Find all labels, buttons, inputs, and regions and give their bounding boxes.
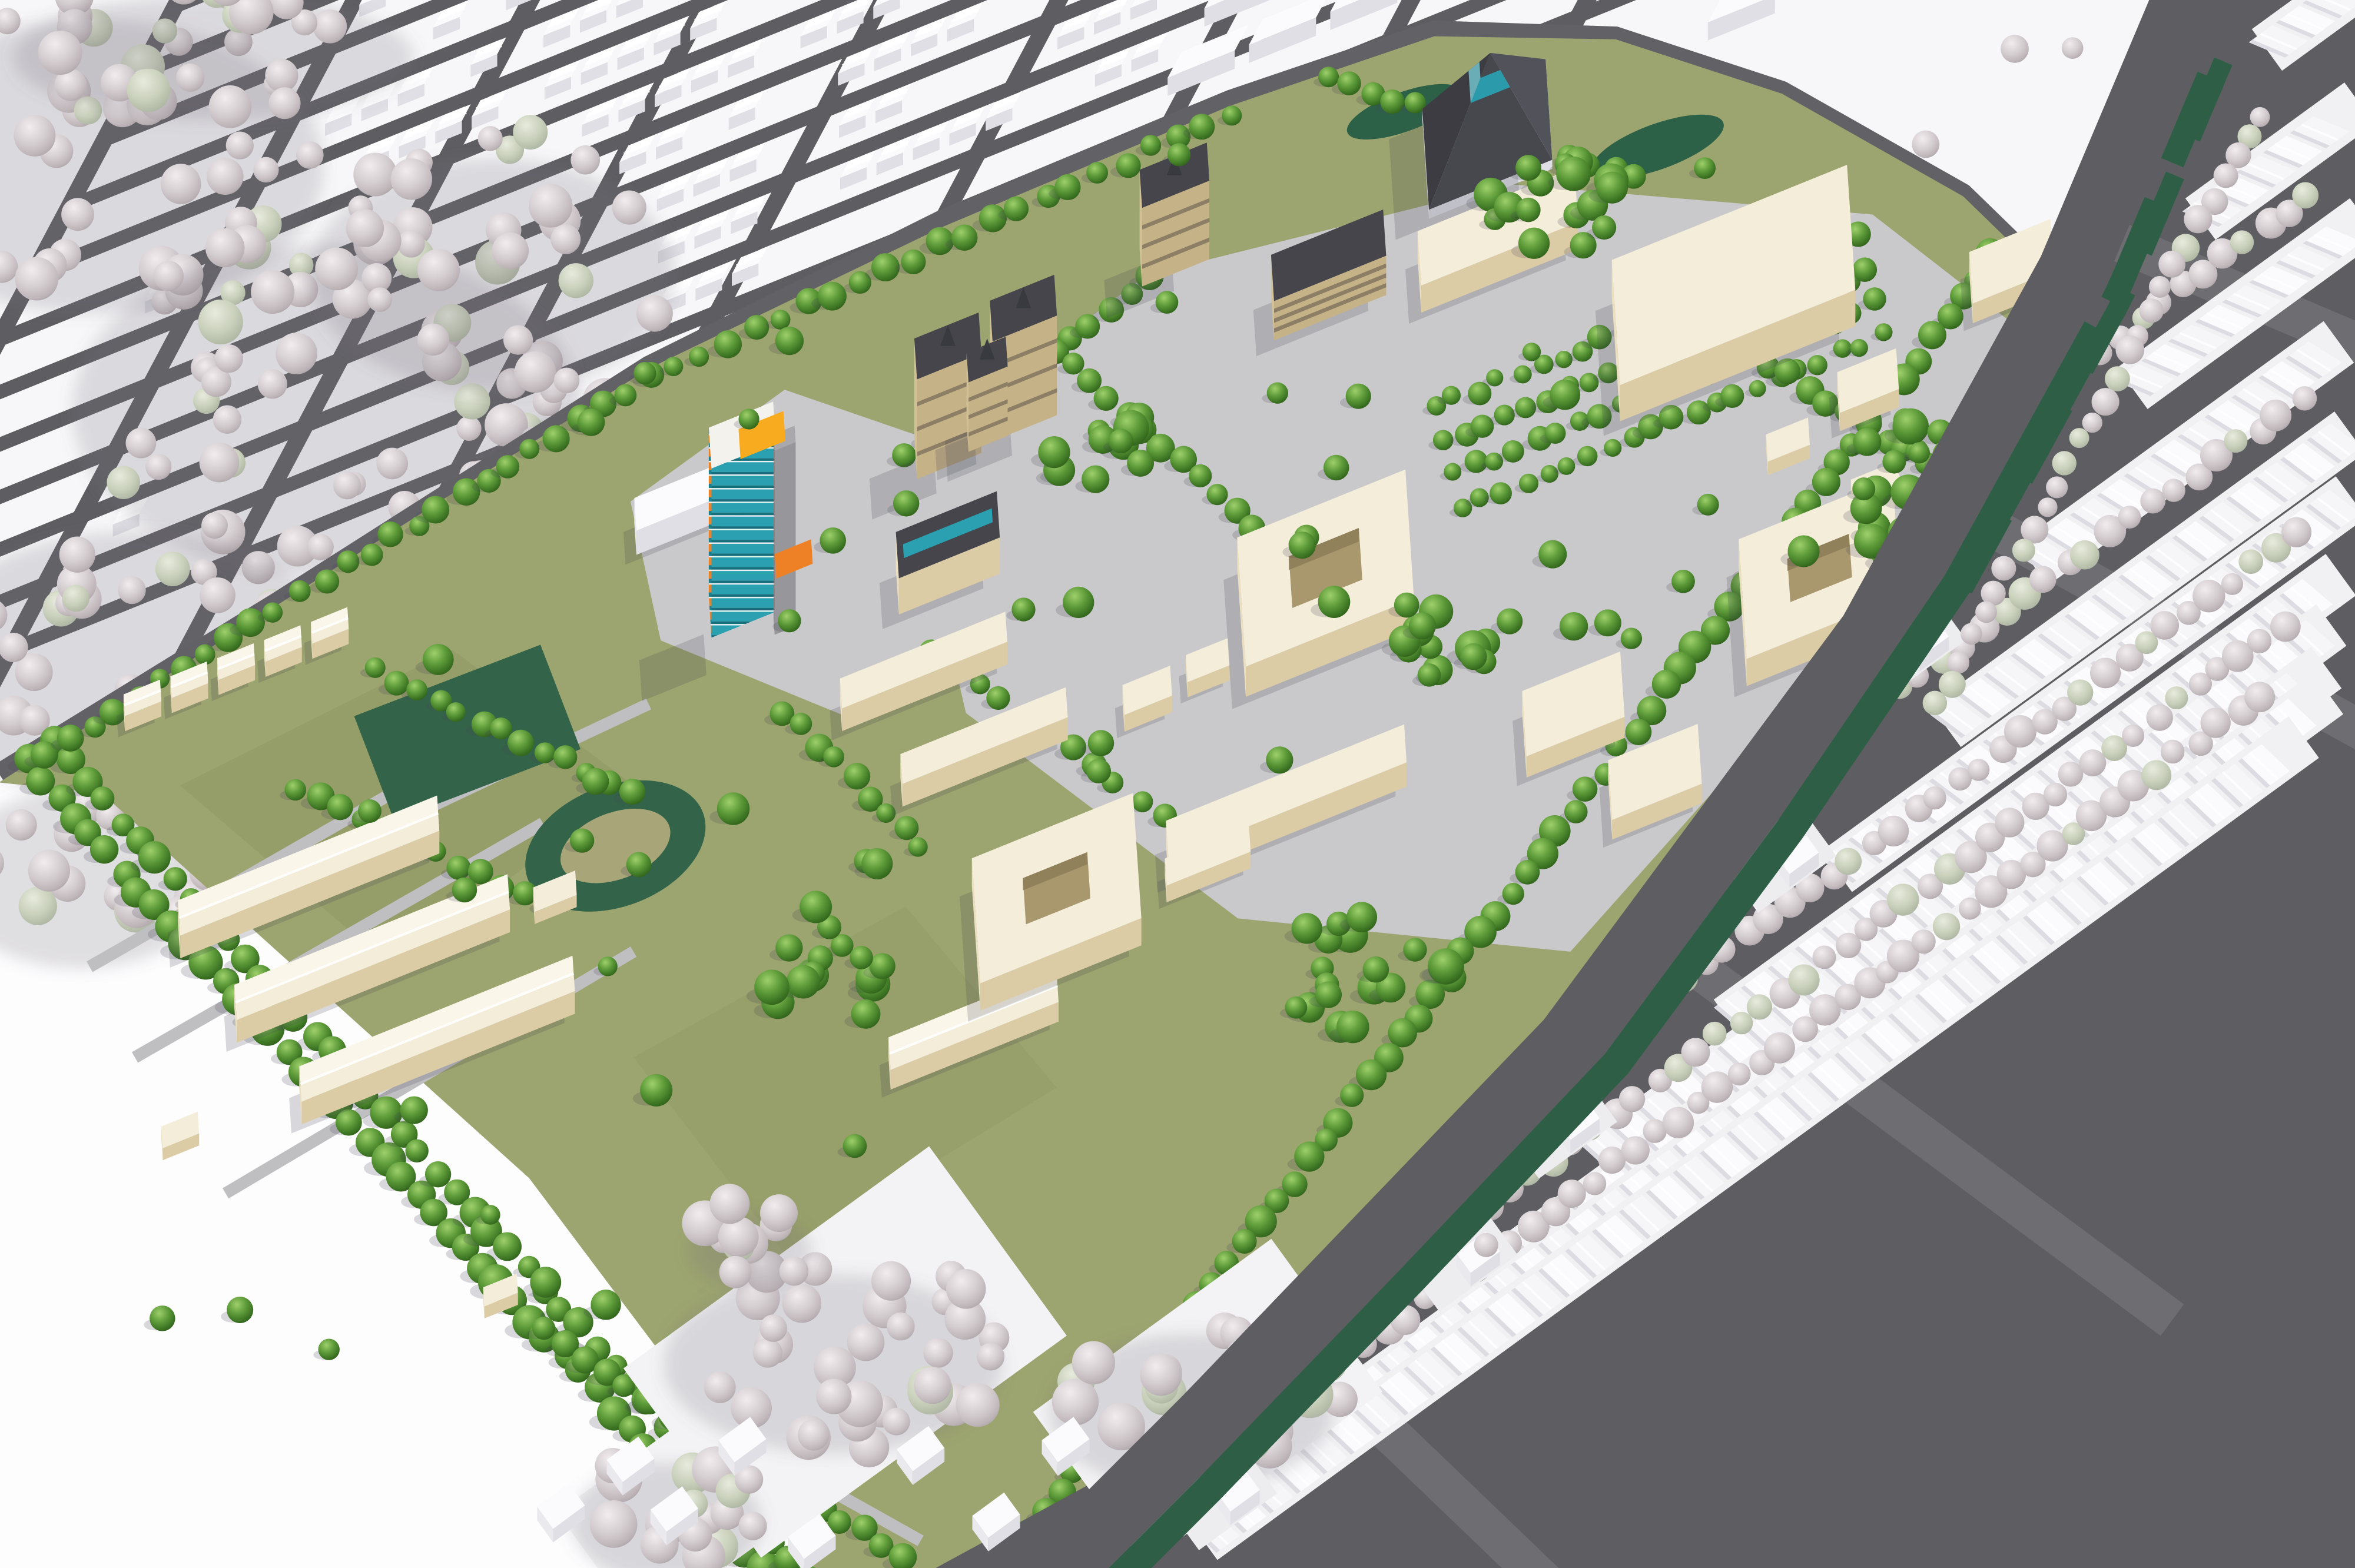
context-tree <box>2244 682 2275 712</box>
context-tree <box>554 368 580 394</box>
campus-tree <box>626 852 652 878</box>
campus-tree <box>894 816 918 840</box>
context-tree <box>313 9 347 44</box>
context-tree <box>346 209 384 247</box>
context-tree <box>1619 1086 1645 1112</box>
context-tree <box>1621 1136 1650 1164</box>
campus-tree <box>1140 135 1161 155</box>
tower-core <box>774 434 775 635</box>
campus-tree <box>1004 197 1029 221</box>
context-tree <box>2150 611 2179 640</box>
campus-tree <box>717 792 749 825</box>
campus-tree <box>1088 730 1115 756</box>
campus-tree <box>138 841 171 873</box>
context-tree <box>1583 1172 1606 1195</box>
context-tree <box>946 1269 986 1309</box>
context-tree <box>1959 898 1981 920</box>
context-tree <box>1878 816 1909 846</box>
campus-tree <box>337 550 359 573</box>
context-tree <box>1140 1354 1182 1396</box>
campus-tree <box>1556 157 1591 191</box>
context-tree <box>515 351 556 393</box>
campus-tree <box>869 953 895 979</box>
campus-tree <box>1156 291 1179 314</box>
campus-tree <box>1116 153 1141 178</box>
campus-tree <box>315 569 339 593</box>
campus-tree <box>850 946 873 969</box>
campus-tree <box>633 362 656 384</box>
campus-tree <box>365 657 386 678</box>
campus-tree <box>1409 612 1436 639</box>
campus-tree <box>1515 155 1541 181</box>
context-tree <box>1995 808 2024 837</box>
campus-tree <box>236 608 265 637</box>
campus-tree <box>908 837 927 856</box>
campus-tree <box>91 786 115 810</box>
context-tree <box>1701 1071 1733 1102</box>
context-tree <box>1887 883 1919 915</box>
campus-tree <box>1222 105 1242 125</box>
campus-tree <box>1909 442 1930 463</box>
campus-tree <box>598 956 618 976</box>
context-tree <box>2070 540 2099 570</box>
campus-tree <box>771 310 791 330</box>
context-tree <box>209 85 252 128</box>
context-tree <box>1961 623 1982 645</box>
context-tree <box>2069 428 2089 448</box>
context-tree <box>126 428 157 459</box>
context-tree <box>2158 251 2185 278</box>
campus-tree <box>1882 450 1906 473</box>
campus-tree <box>1465 450 1488 473</box>
campus-tree <box>1652 670 1681 699</box>
context-tree <box>2052 451 2077 475</box>
context-tree <box>353 152 397 196</box>
campus-tree <box>986 686 1010 710</box>
campus-tree <box>1518 228 1550 259</box>
context-tree <box>315 247 358 290</box>
context-tree <box>1991 556 2016 581</box>
campus-tree <box>787 965 820 999</box>
context-tree <box>154 261 184 291</box>
campus-tree <box>1415 979 1445 1009</box>
context-tree <box>2090 657 2121 688</box>
context-tree <box>2092 388 2119 416</box>
campus-tree <box>775 327 804 355</box>
campus-tree <box>1292 913 1322 944</box>
campus-tree <box>1063 587 1094 618</box>
campus-tree <box>778 609 801 632</box>
campus-tree <box>1127 450 1154 477</box>
context-tree <box>816 1378 851 1414</box>
context-tree <box>2044 783 2067 806</box>
campus-tree <box>425 1161 451 1187</box>
context-tree <box>1912 131 1939 158</box>
campus-tree <box>1592 215 1616 240</box>
campus-tree <box>1062 353 1084 374</box>
campus-tree <box>1418 663 1441 687</box>
context-tree <box>871 1261 911 1301</box>
campus-tree <box>1863 287 1886 310</box>
context-tree <box>161 164 201 204</box>
campus-tree <box>1336 1011 1369 1043</box>
campus-tree <box>1519 474 1538 493</box>
campus-tree <box>1787 536 1819 567</box>
context-tree <box>276 333 317 374</box>
context-tree <box>1681 1038 1710 1067</box>
context-tree <box>2250 107 2270 127</box>
campus-tree <box>1621 628 1642 649</box>
campus-tree <box>1394 593 1419 618</box>
campus-tree <box>714 330 742 358</box>
campus-tree <box>1697 494 1719 516</box>
context-tree <box>798 1419 830 1451</box>
campus-tree <box>1429 949 1464 984</box>
context-tree <box>62 584 89 612</box>
context-tree <box>2062 37 2084 59</box>
context-tree <box>2038 497 2057 517</box>
context-tree <box>1052 1378 1099 1425</box>
context-tree <box>760 1194 798 1232</box>
context-tree <box>1835 848 1862 875</box>
campus-tree <box>738 408 759 429</box>
context-tree <box>2260 400 2291 431</box>
campus-tree <box>1189 114 1215 139</box>
campus-tree <box>1596 172 1628 204</box>
campus-tree <box>490 717 512 739</box>
campus-tree <box>1523 343 1541 361</box>
campus-tree <box>406 1140 429 1162</box>
context-tree <box>503 325 533 354</box>
campus-tree <box>532 1317 555 1340</box>
context-tree <box>118 576 145 604</box>
campus-tree <box>164 867 187 891</box>
campus-tree <box>1502 883 1524 905</box>
context-tree <box>205 228 245 268</box>
context-tree <box>956 1383 1000 1427</box>
context-tree <box>780 1257 809 1286</box>
context-tree <box>207 158 244 195</box>
context-tree <box>201 512 228 539</box>
context-tree <box>2139 298 2164 323</box>
context-tree <box>2046 476 2068 498</box>
context-tree <box>2118 506 2141 529</box>
context-tree <box>1663 1107 1694 1138</box>
campus-tree <box>844 763 870 789</box>
context-tree <box>2079 749 2107 776</box>
context-tree <box>307 534 334 560</box>
context-tree <box>2214 163 2238 188</box>
campus-tree <box>1545 423 1566 444</box>
campus-tree <box>1558 457 1575 475</box>
scene-canvas <box>0 0 2355 1568</box>
context-tree <box>559 263 593 298</box>
campus-tree <box>664 357 683 376</box>
context-tree <box>2293 386 2317 411</box>
campus-tree <box>901 250 926 274</box>
campus-tree <box>851 999 881 1029</box>
context-tree <box>883 1408 910 1436</box>
context-tree <box>155 552 190 586</box>
campus-tree <box>452 878 477 903</box>
context-tree <box>719 1256 752 1288</box>
context-tree <box>753 1338 782 1368</box>
campus-tree <box>775 934 802 961</box>
campus-tree <box>871 253 900 281</box>
context-tree <box>782 1284 822 1323</box>
context-tree <box>2115 335 2144 364</box>
campus-tree <box>1460 643 1487 670</box>
campus-tree <box>1337 71 1361 95</box>
context-tree <box>636 295 673 332</box>
campus-tree <box>1318 586 1351 618</box>
campus-tree <box>553 745 577 769</box>
campus-tree <box>263 602 283 623</box>
context-tree <box>2221 573 2243 595</box>
campus-tree <box>790 713 812 735</box>
campus-tree <box>1541 465 1558 483</box>
campus-tree <box>358 799 382 823</box>
campus-tree <box>1442 386 1461 405</box>
context-tree <box>1747 994 1772 1019</box>
context-tree <box>198 300 243 344</box>
campus-tree <box>1514 366 1532 384</box>
campus-tree <box>361 544 383 566</box>
campus-tree <box>1266 746 1293 773</box>
context-tree <box>397 230 425 258</box>
tower-core <box>775 442 796 634</box>
campus-tree <box>893 490 919 516</box>
context-tree <box>2029 566 2057 593</box>
campus-tree <box>57 725 84 752</box>
campus-tree <box>820 527 846 554</box>
campus-tree <box>1294 1141 1324 1171</box>
context-tree <box>2001 35 2029 63</box>
campus-tree <box>422 496 449 523</box>
context-tree <box>704 1371 736 1403</box>
campus-tree <box>640 1074 672 1107</box>
context-tree <box>2105 366 2130 391</box>
context-tree <box>417 249 460 291</box>
context-tree <box>59 537 95 573</box>
campus-tree <box>800 891 832 923</box>
context-tree <box>19 887 57 925</box>
campus-tree <box>1289 531 1316 559</box>
context-tree <box>2247 629 2272 653</box>
campus-tree <box>578 408 605 436</box>
context-tree <box>847 1324 885 1361</box>
campus-tree <box>150 1305 175 1331</box>
campus-tree <box>406 679 427 700</box>
campus-tree <box>754 969 790 1005</box>
context-tree <box>1933 913 1960 940</box>
campus-tree <box>1189 464 1212 487</box>
context-tree <box>391 158 432 200</box>
context-tree <box>977 1343 1004 1370</box>
context-tree <box>477 126 502 151</box>
campus-tree <box>1038 436 1070 468</box>
context-tree <box>709 1184 749 1224</box>
campus-tree <box>1388 1018 1417 1048</box>
context-tree <box>258 369 287 398</box>
context-tree <box>2193 580 2225 612</box>
context-tree <box>1730 1012 1753 1035</box>
context-tree <box>529 184 572 227</box>
campus-tree <box>1486 369 1503 386</box>
context-tree <box>887 1313 915 1341</box>
campus-tree <box>1502 440 1524 463</box>
campus-tree <box>1471 414 1494 437</box>
campus-tree <box>1550 380 1580 410</box>
context-tree <box>550 224 581 254</box>
campus-tree <box>1285 996 1307 1019</box>
campus-tree <box>1918 321 1946 349</box>
context-tree <box>1703 1022 1727 1046</box>
context-tree <box>2141 760 2171 790</box>
context-tree <box>38 31 82 75</box>
context-tree <box>1947 652 1969 674</box>
landmark-tower-front-face <box>711 443 775 638</box>
context-tree <box>268 87 300 119</box>
campus-tree <box>446 702 466 722</box>
campus-tree <box>1850 339 1868 357</box>
context-tree <box>738 1512 767 1540</box>
campus-tree <box>496 455 520 479</box>
campus-tree <box>1490 482 1512 504</box>
context-tree <box>14 115 56 157</box>
context-tree <box>2165 686 2188 709</box>
context-tree <box>200 577 235 613</box>
campus-tree <box>508 730 534 756</box>
context-tree <box>333 471 361 499</box>
campus-tree <box>519 439 539 459</box>
context-tree <box>1812 945 1836 969</box>
campus-tree <box>1403 938 1427 961</box>
campus-tree <box>1538 540 1567 569</box>
context-tree <box>2058 762 2084 787</box>
context-tree <box>1788 964 1819 995</box>
campus-tree <box>227 1297 253 1323</box>
context-tree <box>215 344 243 373</box>
campus-tree <box>1356 1059 1387 1090</box>
campus-tree <box>1054 174 1080 200</box>
context-tree <box>213 406 241 434</box>
campus-tree <box>1812 468 1840 496</box>
context-tree <box>145 454 171 480</box>
campus-tree <box>1324 455 1349 481</box>
context-tree <box>570 145 600 175</box>
campus-tree <box>327 794 353 820</box>
context-tree <box>1764 1032 1795 1064</box>
campus-tree <box>318 1339 339 1360</box>
context-tree <box>759 1314 787 1342</box>
campus-tree <box>1082 466 1109 493</box>
context-tree <box>2147 704 2173 730</box>
campus-tree <box>823 746 844 768</box>
campus-tree <box>1852 477 1875 500</box>
campus-tree <box>1315 981 1342 1008</box>
context-tree <box>923 1338 953 1368</box>
campus-tree <box>1086 759 1111 783</box>
context-tree <box>590 1500 638 1548</box>
context-tree <box>253 157 278 182</box>
context-tree <box>612 191 646 225</box>
campus-tree <box>614 384 636 407</box>
context-tree <box>513 115 548 150</box>
masterplan-render <box>0 0 2355 1568</box>
campus-tree <box>1626 719 1652 745</box>
context-tree <box>2004 715 2036 748</box>
campus-tree <box>1497 608 1523 634</box>
context-tree <box>417 324 449 356</box>
context-tree <box>2238 549 2263 574</box>
context-tree <box>61 198 94 231</box>
campus-tree <box>1444 463 1461 481</box>
context-tree <box>2140 489 2165 514</box>
campus-tree <box>400 1097 428 1124</box>
context-tree <box>2012 539 2035 562</box>
context-tree <box>914 1367 951 1404</box>
context-tree <box>2281 517 2311 547</box>
campus-tree <box>1132 791 1153 812</box>
context-tree <box>265 59 298 92</box>
campus-tree <box>1346 902 1377 932</box>
context-tree <box>376 448 408 480</box>
campus-tree <box>1875 323 1892 341</box>
context-tree <box>2224 429 2247 453</box>
context-tree <box>2149 276 2171 298</box>
campus-tree <box>1167 143 1190 166</box>
context-tree <box>2184 205 2212 233</box>
campus-tree <box>90 835 118 863</box>
context-tree <box>1728 1062 1751 1085</box>
context-tree <box>176 64 204 92</box>
context-tree <box>107 466 140 500</box>
campus-tree <box>570 828 594 852</box>
context-tree <box>28 850 70 892</box>
context-tree <box>1558 1180 1586 1208</box>
campus-tree <box>423 644 454 675</box>
campus-tree <box>951 224 978 251</box>
campus-tree <box>689 347 709 367</box>
campus-tree <box>1560 612 1588 640</box>
campus-tree <box>493 1233 522 1261</box>
campus-tree <box>744 315 769 340</box>
campus-tree <box>1267 383 1288 404</box>
campus-tree <box>1109 429 1133 454</box>
campus-tree <box>591 1290 621 1320</box>
campus-tree <box>1577 446 1598 467</box>
context-tree <box>200 443 240 483</box>
context-tree <box>2200 707 2230 738</box>
context-tree <box>1975 601 1997 623</box>
campus-tree <box>1516 198 1541 222</box>
campus-tree <box>1363 956 1389 983</box>
campus-tree <box>530 1267 561 1298</box>
context-tree <box>2230 230 2254 254</box>
campus-tree <box>861 848 893 879</box>
context-tree <box>492 232 529 269</box>
context-tree <box>1923 786 1946 809</box>
campus-tree <box>284 779 306 801</box>
context-tree <box>1072 1341 1115 1384</box>
campus-tree <box>1853 428 1881 456</box>
campus-tree <box>1694 157 1716 179</box>
context-tree <box>1474 1233 1498 1257</box>
campus-tree <box>1594 609 1621 636</box>
campus-tree <box>1720 384 1744 408</box>
campus-tree <box>818 282 847 311</box>
